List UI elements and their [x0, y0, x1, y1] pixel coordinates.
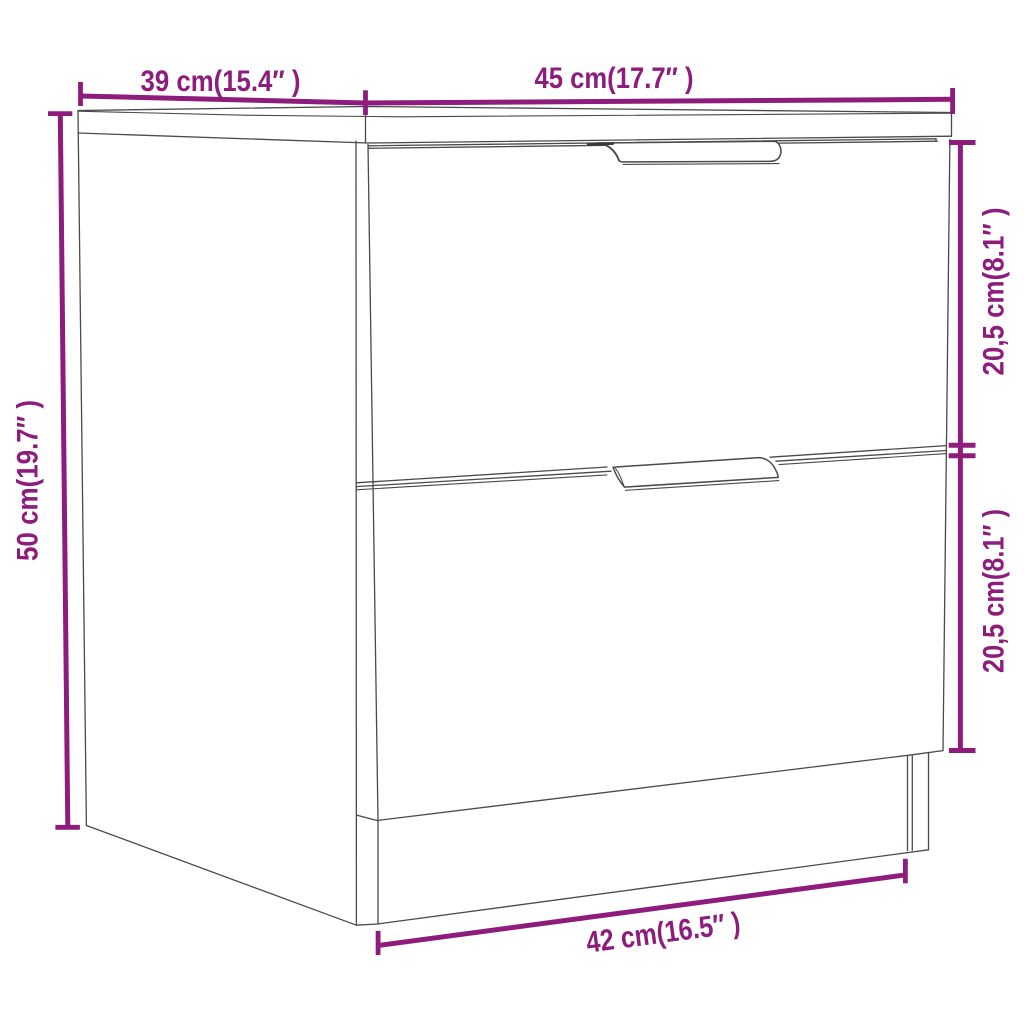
svg-text:20,5 cm(8.1″ ): 20,5 cm(8.1″ ) — [978, 208, 1011, 376]
svg-text:20,5 cm(8.1″ ): 20,5 cm(8.1″ ) — [978, 509, 1011, 673]
svg-text:39 cm(15.4″ ): 39 cm(15.4″ ) — [141, 65, 301, 98]
svg-text:50 cm(19.7″ ): 50 cm(19.7″ ) — [12, 400, 45, 561]
svg-text:45 cm(17.7″ ): 45 cm(17.7″ ) — [535, 62, 694, 95]
